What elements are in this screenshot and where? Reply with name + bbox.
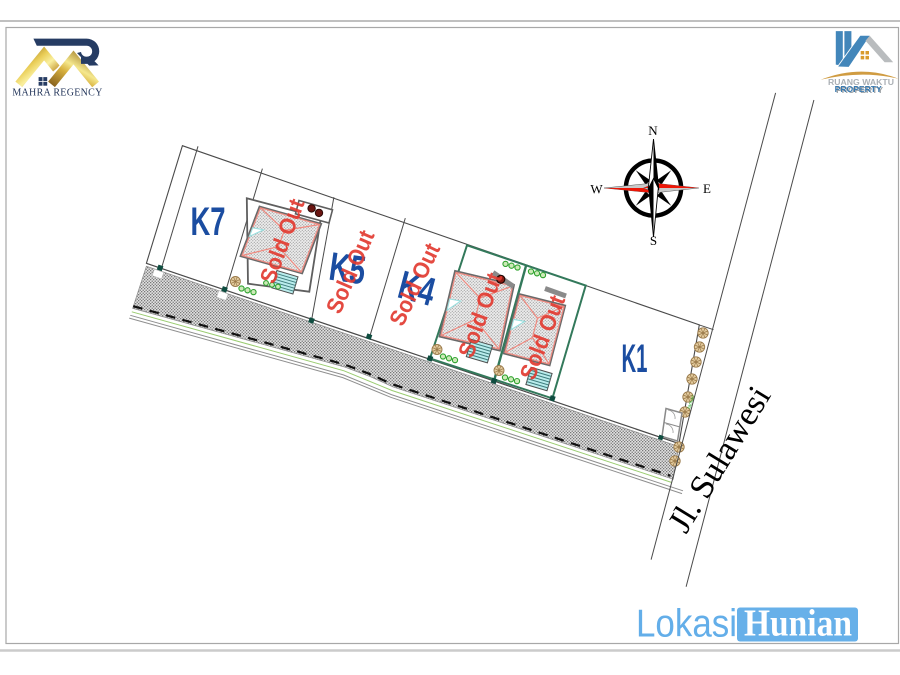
svg-text:MAHRA REGENCY: MAHRA REGENCY <box>12 88 102 99</box>
svg-text:Lokasi: Lokasi <box>636 603 737 646</box>
svg-text:Hunian: Hunian <box>744 603 852 645</box>
svg-text:N: N <box>648 123 658 138</box>
svg-text:PROPERTY: PROPERTY <box>835 84 882 94</box>
svg-text:K1: K1 <box>622 337 648 381</box>
svg-text:E: E <box>703 181 711 196</box>
svg-text:W: W <box>590 182 603 197</box>
svg-text:K7: K7 <box>191 200 226 244</box>
svg-text:S: S <box>650 233 657 248</box>
